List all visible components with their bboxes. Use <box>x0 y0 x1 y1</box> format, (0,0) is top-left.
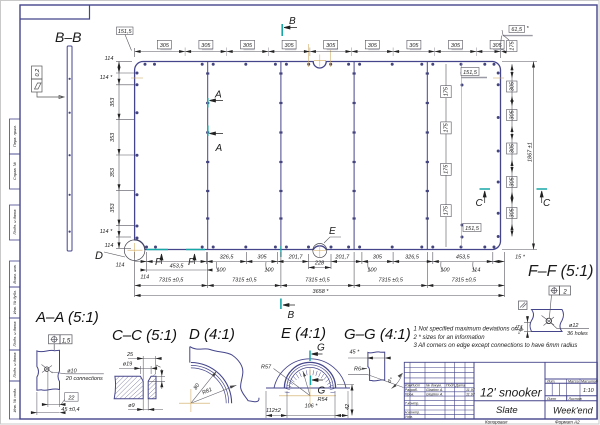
svg-text:100: 100 <box>264 268 274 274</box>
svg-text:7315 ±0,5: 7315 ±0,5 <box>232 278 257 284</box>
svg-text:G: G <box>318 386 326 397</box>
svg-text:114: 114 <box>105 243 114 249</box>
svg-text:D (4:1): D (4:1) <box>189 326 235 343</box>
svg-text:№ докум.: № докум. <box>426 384 442 388</box>
svg-text:305: 305 <box>373 255 383 261</box>
svg-text:Лист: Лист <box>410 384 420 388</box>
svg-text:A–A (5:1): A–A (5:1) <box>35 309 99 326</box>
svg-text:326,5: 326,5 <box>220 255 235 261</box>
svg-text:100: 100 <box>367 268 377 274</box>
svg-text:114 *: 114 * <box>100 229 113 235</box>
svg-text:Взам. инв.: Взам. инв. <box>12 264 17 283</box>
svg-text:61,5: 61,5 <box>511 27 523 33</box>
svg-text:B: B <box>289 16 296 27</box>
svg-text:F: F <box>188 257 195 268</box>
svg-text:2: 2 <box>517 330 521 335</box>
svg-text:F–F (5:1): F–F (5:1) <box>528 263 594 280</box>
svg-text:42: 42 <box>345 404 351 410</box>
svg-text:3658 *: 3658 * <box>313 289 330 295</box>
svg-text:175: 175 <box>444 205 450 215</box>
svg-text:1:10: 1:10 <box>583 388 595 394</box>
svg-text:175: 175 <box>510 40 516 50</box>
svg-text:F: F <box>155 257 162 268</box>
svg-text:1,5: 1,5 <box>62 338 71 344</box>
svg-text:E: E <box>329 226 336 237</box>
svg-text:453,5: 453,5 <box>456 255 471 261</box>
svg-text:22: 22 <box>67 395 74 401</box>
svg-text:305: 305 <box>510 207 516 217</box>
svg-text:E (4:1): E (4:1) <box>281 325 326 342</box>
svg-text:305: 305 <box>368 43 378 49</box>
svg-text:45 ±0,4: 45 ±0,4 <box>61 407 79 413</box>
svg-text:Лит.: Лит. <box>546 379 555 383</box>
svg-text:112±2: 112±2 <box>266 408 281 414</box>
svg-text:228: 228 <box>314 261 325 267</box>
svg-text:3 All corners on edge except: 3 All corners on edge except connections… <box>414 343 578 349</box>
svg-text:Т.контр.: Т.контр. <box>405 402 420 406</box>
svg-text:ø9: ø9 <box>128 403 134 409</box>
svg-text:A: A <box>215 143 223 154</box>
svg-text:B: B <box>288 310 295 321</box>
svg-text:1 Not specified maximum devia: 1 Not specified maximum deviations on ± <box>414 327 524 333</box>
svg-text:C: C <box>543 198 551 209</box>
svg-text:175: 175 <box>444 122 450 132</box>
svg-text:Справ. №: Справ. № <box>12 161 17 180</box>
svg-text:ø10: ø10 <box>67 368 77 374</box>
svg-text:R54: R54 <box>318 397 328 403</box>
svg-text:A: A <box>214 90 222 101</box>
svg-text:15 *: 15 * <box>515 255 526 261</box>
svg-text:175: 175 <box>444 164 450 174</box>
svg-text:7315 ±0,5: 7315 ±0,5 <box>159 278 184 284</box>
svg-text:R6: R6 <box>354 367 362 373</box>
svg-text:20 connections: 20 connections <box>65 376 103 382</box>
svg-text:36 holes: 36 holes <box>567 331 588 337</box>
svg-text:7315 ±0,5: 7315 ±0,5 <box>452 278 477 284</box>
svg-text:0,2: 0,2 <box>35 69 41 77</box>
svg-text:D: D <box>95 250 103 262</box>
svg-text:201,7: 201,7 <box>334 255 350 261</box>
svg-text:Инв. № дубл.: Инв. № дубл. <box>12 290 17 315</box>
svg-text:305: 305 <box>326 43 336 49</box>
svg-text:114: 114 <box>140 275 149 281</box>
svg-text:G: G <box>317 343 325 354</box>
svg-text:R57: R57 <box>261 365 272 371</box>
svg-text:Glazkov A.: Glazkov A. <box>426 392 443 396</box>
svg-text:453,5: 453,5 <box>170 264 185 270</box>
svg-text:305: 305 <box>257 255 267 261</box>
svg-text:114: 114 <box>105 56 114 62</box>
svg-text:151,5: 151,5 <box>463 70 478 76</box>
svg-text:114 *: 114 * <box>100 75 113 81</box>
svg-text:114: 114 <box>116 263 125 269</box>
svg-text:Подп. и дата: Подп. и дата <box>12 352 17 378</box>
svg-text:45 *: 45 * <box>350 350 361 356</box>
svg-text:11.97: 11.97 <box>466 392 476 396</box>
svg-text:IT4: IT4 <box>516 324 523 329</box>
svg-text:305: 305 <box>409 43 419 49</box>
svg-text:353: 353 <box>110 132 116 142</box>
svg-text:305: 305 <box>510 81 516 91</box>
svg-text:305: 305 <box>160 43 170 49</box>
svg-text:B–B: B–B <box>55 29 81 45</box>
svg-text:Week'end: Week'end <box>553 406 594 416</box>
svg-text:Дата: Дата <box>455 384 465 388</box>
svg-text:7315 ±0,5: 7315 ±0,5 <box>378 278 403 284</box>
svg-text:12' snooker: 12' snooker <box>480 386 543 400</box>
svg-text:Листов: Листов <box>568 397 582 401</box>
svg-text:100: 100 <box>216 268 226 274</box>
svg-text:Подп. и дата: Подп. и дата <box>12 209 17 235</box>
svg-text:353: 353 <box>110 97 116 107</box>
svg-text:Перв. прим.: Перв. прим. <box>12 125 17 147</box>
svg-text:Подп. и дата: Подп. и дата <box>12 321 17 347</box>
svg-text:Лист: Лист <box>546 397 556 401</box>
svg-text:305: 305 <box>510 143 516 153</box>
svg-text:114: 114 <box>472 268 481 274</box>
svg-text:1867 ±1: 1867 ±1 <box>528 142 534 162</box>
svg-text:201,7: 201,7 <box>288 255 304 261</box>
svg-text:2: 2 <box>562 290 567 296</box>
svg-text:305: 305 <box>493 43 503 49</box>
svg-text:305: 305 <box>451 43 461 49</box>
svg-text:100: 100 <box>440 268 450 274</box>
svg-text:Формат А2: Формат А2 <box>555 420 580 425</box>
svg-text:C–C (5:1): C–C (5:1) <box>112 327 177 344</box>
svg-text:Масса: Масса <box>568 379 579 383</box>
svg-text:305: 305 <box>243 43 253 49</box>
svg-text:305: 305 <box>285 43 295 49</box>
svg-text:Копировал: Копировал <box>485 420 508 425</box>
svg-text:326,5: 326,5 <box>405 255 420 261</box>
svg-text:353: 353 <box>110 167 116 177</box>
svg-text:C: C <box>476 198 484 209</box>
svg-text:353: 353 <box>110 202 116 212</box>
svg-text:25: 25 <box>126 352 134 358</box>
svg-text:Масштаб: Масштаб <box>581 379 599 383</box>
svg-text:2 * sizes for an information: 2 * sizes for an information <box>413 335 486 341</box>
svg-text:Подп.: Подп. <box>446 384 456 388</box>
svg-text:Slate: Slate <box>496 405 518 416</box>
svg-text:Утв.: Утв. <box>405 415 413 419</box>
svg-text:ø19: ø19 <box>123 361 132 367</box>
svg-text:305: 305 <box>510 109 516 119</box>
svg-text:7315 ±0,5: 7315 ±0,5 <box>305 278 330 284</box>
svg-text:ø12: ø12 <box>569 323 578 329</box>
svg-text:175: 175 <box>444 86 450 96</box>
svg-text:151,5: 151,5 <box>465 226 480 232</box>
svg-text:305: 305 <box>510 176 516 186</box>
svg-text:305: 305 <box>201 43 211 49</box>
svg-text:G–G (4:1): G–G (4:1) <box>344 326 411 343</box>
svg-text:106 *: 106 * <box>305 404 319 410</box>
svg-text:Пров.: Пров. <box>405 392 414 396</box>
svg-text:151,5: 151,5 <box>118 29 133 35</box>
svg-text:Инв. № подл.: Инв. № подл. <box>12 388 17 413</box>
